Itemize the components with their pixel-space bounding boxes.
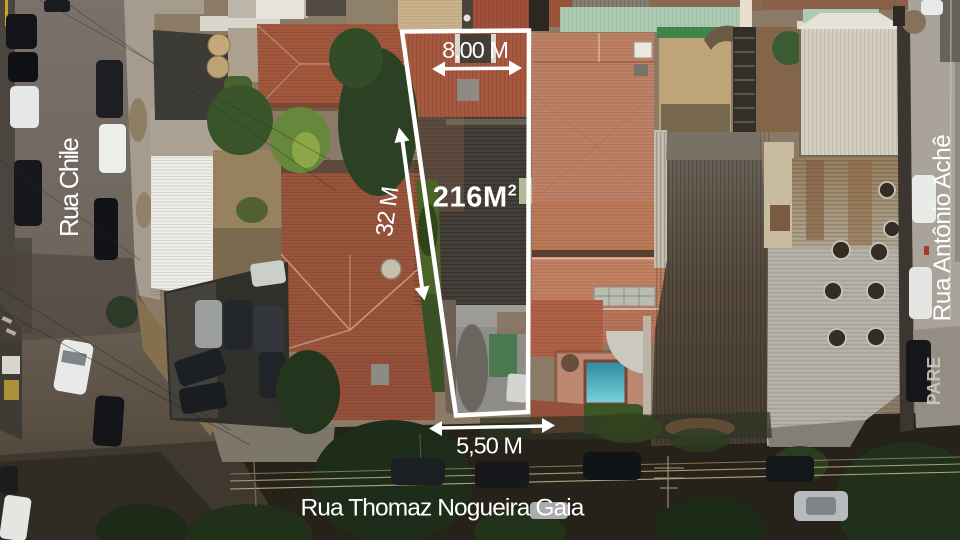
svg-text:216M2: 216M2 [433,182,517,214]
svg-text:PARE: PARE [924,357,944,406]
svg-text:Rua Chile: Rua Chile [54,138,84,237]
svg-text:Rua Antônio Achê: Rua Antônio Achê [929,135,956,322]
svg-text:Rua Thomaz Nogueira Gaia: Rua Thomaz Nogueira Gaia [301,495,585,522]
svg-text:8,00 M: 8,00 M [442,37,508,63]
svg-text:5,50 M: 5,50 M [456,433,522,459]
